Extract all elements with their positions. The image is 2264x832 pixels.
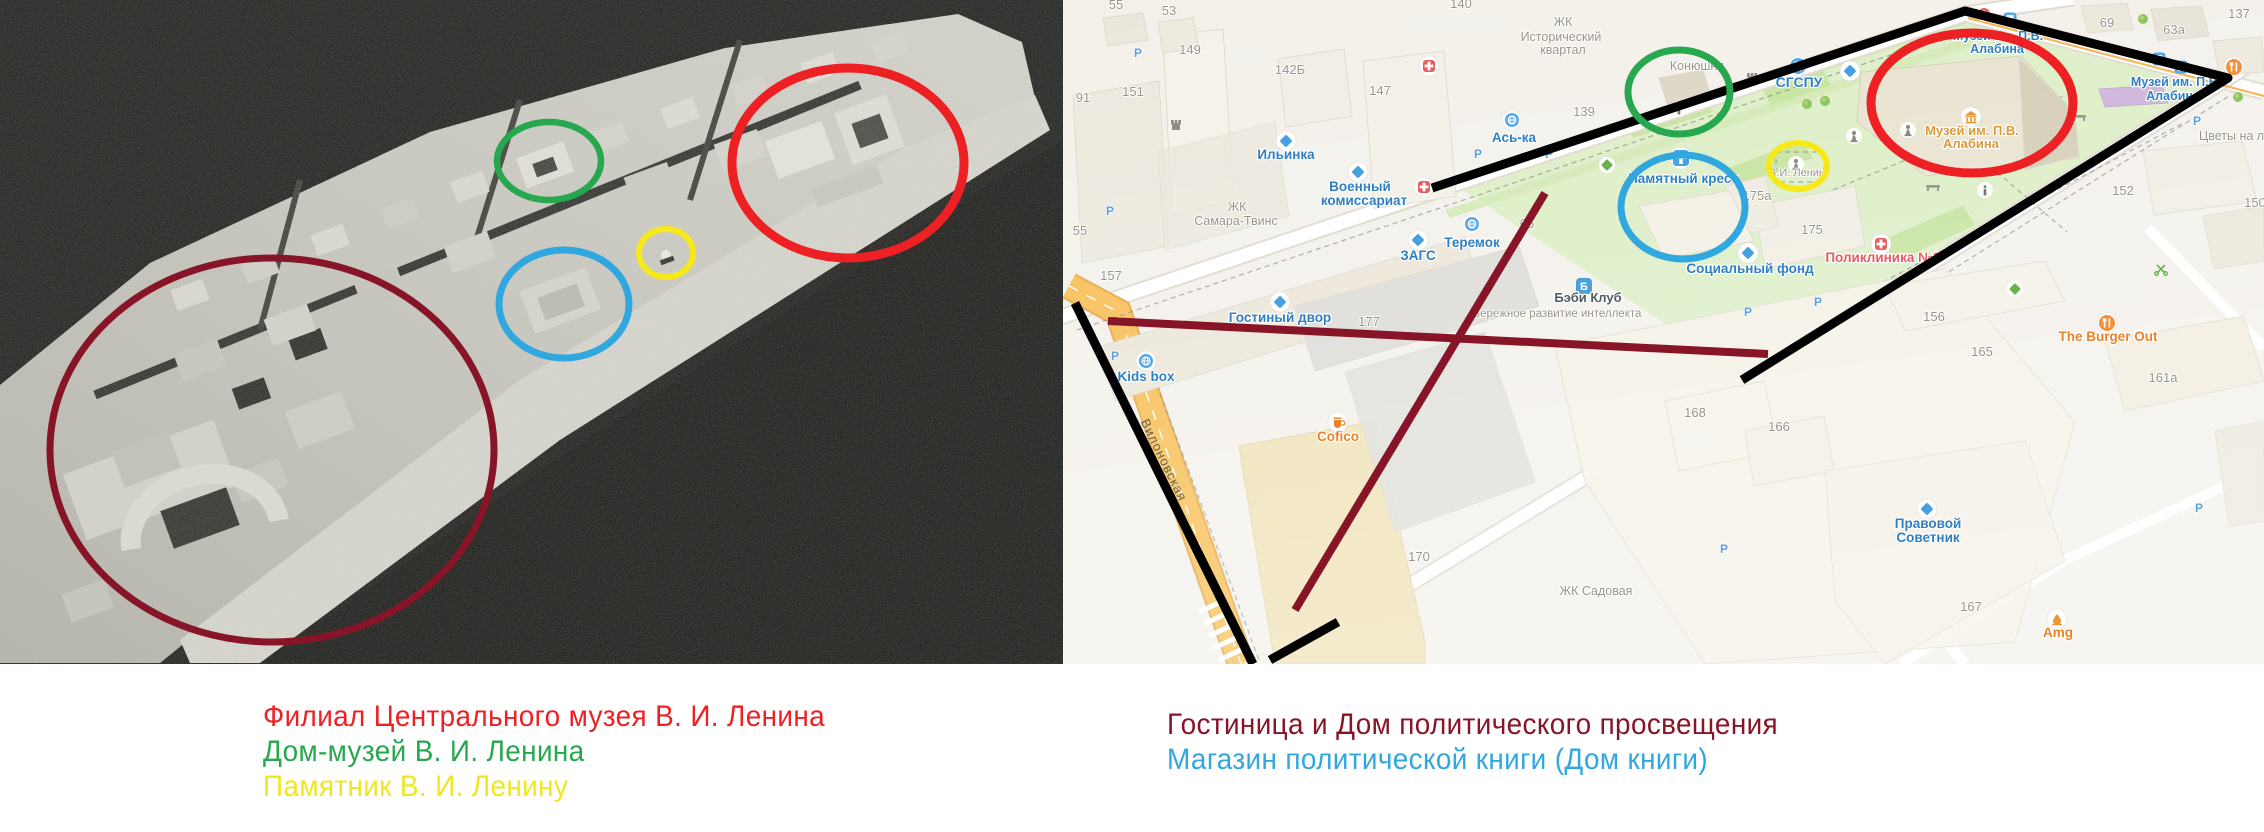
house-number-label: 167 <box>1960 599 1982 614</box>
house-number-label: квартал <box>1540 43 1585 57</box>
aska-globe-icon <box>1502 110 1522 130</box>
legend-lenin-house-museum: Дом-музей В. И. Ленина <box>263 734 825 769</box>
photo-grain <box>0 0 1063 664</box>
legend-political-book-store: Магазин политической книги (Дом книги) <box>1167 742 1778 777</box>
poi-label: Ильинка <box>1257 147 1315 162</box>
residential-complex-icon-1 <box>1171 120 1181 130</box>
business-label: The Burger Out <box>2058 329 2158 344</box>
house-number-label: 140 <box>1450 0 1472 11</box>
poi-label: Kids box <box>1117 369 1174 384</box>
parking-label: P <box>2195 501 2203 515</box>
poi-label: Бэби Клуб <box>1554 290 1621 305</box>
model-photo <box>0 0 1063 664</box>
house-number-label: 168 <box>1684 405 1706 420</box>
poi-label: Теремок <box>1444 235 1500 250</box>
parking-label: P <box>1106 204 1114 218</box>
tree-icon-3 <box>2138 14 2148 24</box>
dark-labels: Бэби Клуб <box>1554 290 1621 305</box>
house-number-label: 166 <box>1768 419 1790 434</box>
house-number-label: 156 <box>1923 309 1945 324</box>
pharmacy-icon-2 <box>1414 177 1434 197</box>
tree-icon-4 <box>2233 92 2243 102</box>
house-number-label: 170 <box>1408 549 1430 564</box>
zags-poi-icon <box>1408 230 1428 250</box>
house-number-label: 150 <box>2244 195 2264 210</box>
poi-label: комиссариат <box>1321 193 1408 208</box>
business-label: Amg <box>2043 625 2073 640</box>
green-poi-icon-1 <box>1599 157 1615 173</box>
house-number-label: 91 <box>1076 90 1090 105</box>
house-number-label: 53 <box>1162 3 1176 18</box>
statue-icon <box>1900 122 1916 138</box>
sgspu-side-poi-icon <box>1840 61 1860 81</box>
poi-label: СГСПУ <box>1776 74 1823 90</box>
tree-icon-2 <box>1820 96 1830 106</box>
house-number-label: 63а <box>2163 22 2185 37</box>
parking-label: P <box>1474 147 1482 161</box>
house-number-label: 137 <box>2228 6 2250 21</box>
poi-label: Ась-ка <box>1492 130 1537 145</box>
legend-left: Филиал Центрального музея В. И. Ленина Д… <box>263 699 825 804</box>
house-number-label: ЖК <box>1228 200 1248 214</box>
house-number-label: 147 <box>1369 83 1391 98</box>
teremok-globe-icon <box>1462 214 1482 234</box>
map-view: Б 555314915191142Б1475515713914066177170… <box>1063 0 2264 664</box>
house-number-label: 177 <box>1358 314 1380 329</box>
tree-icon-1 <box>1802 99 1812 109</box>
kidsbox-globe-icon <box>1136 351 1156 371</box>
parking-label: P <box>1111 349 1119 363</box>
legend-lenin-monument: Памятник В. И. Ленину <box>263 769 825 804</box>
parking-label: P <box>2193 114 2201 128</box>
house-number-label: Самара-Твинс <box>1194 214 1278 228</box>
poi-label: Социальный фонд <box>1686 261 1814 276</box>
parking-label: P <box>1814 295 1822 309</box>
house-number-label: 69 <box>2100 15 2114 30</box>
house-number-label: 175 <box>1801 222 1823 237</box>
parking-label: P <box>1744 305 1752 319</box>
poi-label: Советник <box>1896 530 1960 545</box>
legend-hotel-political-education: Гостиница и Дом политического просвещени… <box>1167 707 1778 742</box>
poi-label: Военный <box>1329 179 1391 194</box>
museum-label: Алабина <box>1943 136 2000 151</box>
legend-right: Гостиница и Дом политического просвещени… <box>1167 707 1778 777</box>
house-number-label: ЖК Садовая <box>1560 584 1633 598</box>
house-number-label: Цветы на лн <box>2199 129 2264 143</box>
house-number-label: Бережное развитие интеллекта <box>1473 308 1642 320</box>
house-number-label: 149 <box>1179 42 1201 57</box>
house-number-label: Исторический <box>1521 30 1602 44</box>
house-number-label: 55 <box>1109 0 1123 12</box>
comparison-figure: Б 555314915191142Б1475515713914066177170… <box>0 0 2264 832</box>
info-icon-2 <box>1977 182 1993 198</box>
house-number-label: В.И. Ленин <box>1769 167 1825 179</box>
house-number-label: 152 <box>2112 183 2134 198</box>
house-number-label: 151 <box>1122 84 1144 99</box>
house-number-label: 157 <box>1100 268 1122 283</box>
green-poi-icon-2 <box>2007 281 2023 297</box>
house-number-label: 161а <box>2149 370 2179 385</box>
house-number-label: 55 <box>1073 223 1087 238</box>
poi-label: Гостиный двор <box>1229 310 1331 325</box>
house-number-label: 142Б <box>1275 62 1305 77</box>
house-number-label: 165 <box>1971 344 1993 359</box>
legend-lenin-museum-branch: Филиал Центрального музея В. И. Ленина <box>263 699 825 734</box>
pharmacy-icon-1 <box>1419 56 1439 76</box>
poi-label: Памятный крест <box>1628 171 1738 186</box>
parking-label: P <box>1134 46 1142 60</box>
statue-icon-2 <box>1846 128 1862 144</box>
poi-label: ЗАГС <box>1400 248 1436 263</box>
business-label: Cofico <box>1317 429 1359 444</box>
poi-label: Правовой <box>1895 516 1962 531</box>
house-number-label: ЖК <box>1554 15 1574 29</box>
gostiny-dvor-poi-icon <box>1270 292 1290 312</box>
house-number-label: 139 <box>1573 104 1595 119</box>
parking-label: P <box>1720 542 1728 556</box>
social-fund-poi-icon <box>1738 243 1758 263</box>
